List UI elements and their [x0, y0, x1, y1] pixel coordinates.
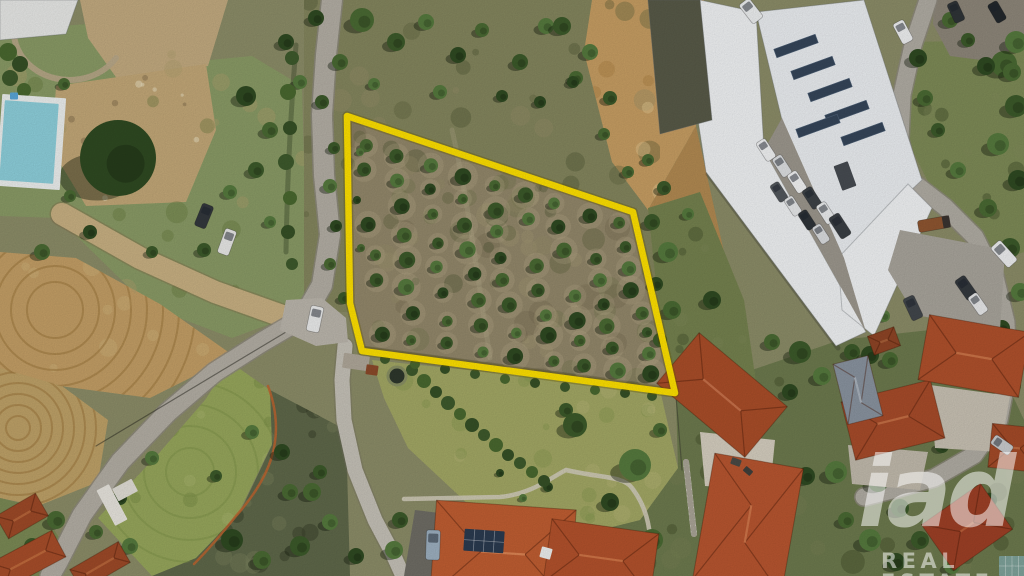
photo-grain [0, 0, 1024, 576]
aerial-photo: iad REAL ESTATE [0, 0, 1024, 576]
aerial-photo-svg [0, 0, 1024, 576]
